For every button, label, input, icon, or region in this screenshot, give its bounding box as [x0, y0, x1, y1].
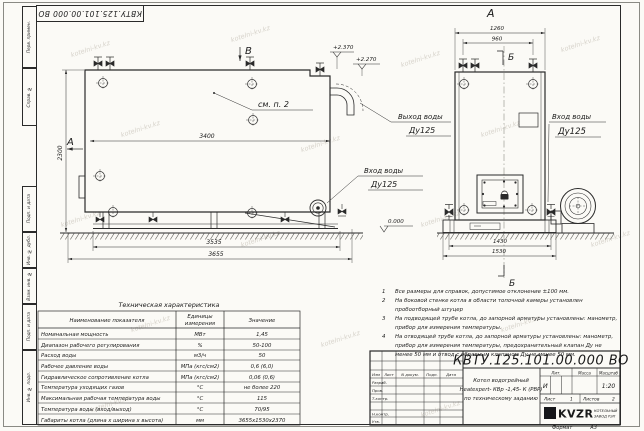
- note-text: На боковой стенке котла в области топочн…: [395, 297, 620, 315]
- inlet-dn-front: Ду125: [557, 127, 586, 137]
- note-text: На отводящей трубе котла, до запорной ар…: [395, 333, 620, 360]
- tb-sig-prov: Пров.: [372, 388, 383, 393]
- section-label-a: А: [66, 137, 74, 148]
- side-skid: [93, 212, 338, 229]
- dim-1430: 1430: [493, 239, 507, 245]
- spec-table-title: Техническая характеристика: [118, 301, 219, 309]
- front-dimensions: 1260 960 1430 1530: [443, 26, 556, 260]
- note-item: 1Все размеры для справок, допустимое отк…: [382, 288, 620, 297]
- elevation-marks: +2.370 +2.270 0.000: [330, 45, 413, 232]
- spec-row-name: Рабочее давление воды: [41, 364, 108, 370]
- elev-2370: +2.370: [333, 45, 354, 51]
- spec-row-value: 70/95: [254, 407, 270, 413]
- inlet-label-side: Вход воды: [364, 167, 404, 175]
- notes-list: 1Все размеры для справок, допустимое отк…: [382, 288, 620, 360]
- dim-3655: 3655: [208, 251, 223, 258]
- see-note-label: см. п. 2: [258, 100, 289, 109]
- note-number: 3: [382, 315, 395, 333]
- spec-row-name: Диапазон рабочего регулирования: [40, 343, 140, 349]
- dim-960: 960: [492, 37, 503, 43]
- spec-row-units: °С: [197, 396, 204, 402]
- inlet-label-front: Вход воды: [552, 113, 592, 121]
- boiler-drawing: 3400 2300 3535 3655 +2.370: [0, 0, 644, 430]
- note-text: На подводящей трубе котла, до запорной а…: [395, 315, 620, 333]
- spec-header-units-2: измерения: [185, 321, 216, 327]
- outlet-elbow: [330, 84, 363, 115]
- title-block: Изм Лист N докум. Подп. Дата Разраб. Про…: [370, 351, 629, 425]
- furnace-door: [477, 175, 523, 213]
- elev-0000: 0.000: [388, 219, 404, 225]
- tb-sheets-label: Листов: [582, 397, 600, 403]
- tb-lit-value: И: [543, 382, 548, 390]
- inspection-plugs-side: [93, 76, 260, 220]
- tb-scale-value: 1:20: [602, 383, 616, 390]
- inlet-dn-side: Ду125: [370, 180, 397, 189]
- ground: [60, 233, 614, 240]
- tb-col-data: Дата: [445, 372, 457, 377]
- tb-name-3: по техническому заданию: [464, 396, 538, 402]
- kvzr-logo-text: KVZR: [558, 408, 594, 421]
- tb-scale-header: Масштаб: [599, 371, 619, 376]
- side-labels: В А см. п. 2: [66, 46, 313, 149]
- spec-row-name: Расход воды: [41, 353, 76, 359]
- tb-name-1: Котел водогрейный: [473, 378, 529, 384]
- spec-row-units: МВт: [194, 332, 206, 338]
- tb-col-list: Лист: [383, 372, 394, 377]
- tb-col-podp: Подп.: [426, 372, 438, 377]
- kvzr-caption-2: ЗАВОД РЭП: [594, 415, 616, 419]
- front-view: А: [443, 7, 606, 289]
- spec-row-value: 50-100: [253, 343, 272, 349]
- spec-header-units-1: Единицы: [187, 314, 212, 320]
- spec-row-value: 0,06 (0,6): [249, 375, 275, 381]
- spec-row-units: МПа (кгс/см2): [181, 375, 220, 381]
- front-base: [443, 220, 556, 233]
- spec-row-units: м3/ч: [194, 353, 206, 359]
- spec-header-name: Наименование показателя: [70, 318, 146, 324]
- spec-row-name: Температура уходящих газов: [41, 385, 124, 391]
- tb-sheet-label: Лист: [543, 397, 556, 403]
- note-number: 4: [382, 333, 395, 360]
- side-view: 3400 2300 3535 3655 +2.370: [57, 45, 451, 263]
- tb-name-2: Heatexpert- КВр -1,45- К (РВР): [460, 387, 543, 393]
- dim-3400: 3400: [199, 133, 214, 140]
- side-callouts: Выход воды Ду125 Вход воды Ду125: [327, 103, 451, 203]
- spec-row-name: Габариты котла (длина х ширина х высота): [41, 418, 163, 424]
- inlet-flange: [310, 200, 326, 216]
- note-text: Все размеры для справок, допустимое откл…: [395, 288, 620, 297]
- spec-row-value: 50: [259, 353, 266, 359]
- spec-row-name: Гидравлическое сопротивление котла: [41, 375, 149, 381]
- spec-row-units: МПа (кгс/см2): [181, 364, 220, 370]
- dim-1260: 1260: [490, 26, 504, 32]
- spec-table: Техническая характеристика Наименование …: [38, 301, 300, 425]
- front-view-label: А: [486, 7, 495, 20]
- spec-header-value: Значение: [249, 318, 276, 324]
- spec-row-name: Максимальная рабочая температура воды: [41, 396, 160, 402]
- outlet-label: Выход воды: [398, 113, 443, 121]
- side-plate: [79, 176, 85, 198]
- tb-sig-tkontr: Т.контр.: [372, 396, 388, 401]
- spec-row-value: 0,6 (6,0): [251, 364, 274, 370]
- dim-3535: 3535: [206, 239, 221, 246]
- tb-lit-header: Лит.: [550, 371, 560, 376]
- outlet-dn: Ду125: [408, 126, 435, 135]
- tb-sig-utv: Утв.: [372, 419, 380, 424]
- view-arrow-v: В: [245, 46, 252, 57]
- section-b-top: Б: [508, 53, 514, 63]
- spec-row-name: Температура воды (вход/выход): [41, 407, 132, 413]
- tb-sheet-value: 1: [570, 397, 573, 403]
- kvzr-logo: KVZR КОТЕЛЬНЫЙ ЗАВОД РЭП: [544, 407, 618, 421]
- spec-row-name: Номинальная мощность: [41, 332, 109, 338]
- top-valves-side: [94, 57, 324, 76]
- note-number: 2: [382, 297, 395, 315]
- tb-sig-razrab: Разраб.: [372, 380, 387, 385]
- dim-2300: 2300: [57, 145, 64, 160]
- boiler-shell-front: [455, 72, 545, 220]
- spec-row-units: °С: [197, 407, 204, 413]
- inspection-plugs-front: [457, 77, 540, 217]
- spec-row-value: 115: [257, 396, 268, 402]
- spec-row-value: не более 220: [244, 385, 281, 391]
- tb-sig-nkontr: Н.контр.: [372, 412, 389, 417]
- tb-sheets-value: 2: [612, 397, 615, 403]
- spec-row-units: °С: [197, 385, 204, 391]
- drain-valves: [96, 204, 346, 222]
- front-pipe-valves: [445, 205, 555, 221]
- spec-row-units: %: [197, 343, 202, 349]
- tb-mass-header: Масса: [578, 371, 591, 376]
- tb-col-izm: Изм: [372, 372, 380, 377]
- dim-1530: 1530: [492, 249, 506, 255]
- spec-row-value: 1,45: [256, 332, 268, 338]
- blower-fan: [551, 189, 596, 234]
- tb-col-ndokum: N докум.: [401, 372, 419, 377]
- top-valves-front: [459, 59, 537, 72]
- flue-opening: [519, 113, 538, 127]
- elev-2270: +2.270: [356, 57, 377, 63]
- note-item: 3На подводящей трубе котла, до запорной …: [382, 315, 620, 333]
- note-item: 2На боковой стенке котла в области топоч…: [382, 297, 620, 315]
- spec-row-units: мм: [196, 418, 204, 424]
- note-number: 1: [382, 288, 395, 297]
- spec-row-value: 3655х1530х2370: [239, 418, 286, 424]
- note-item: 4На отводящей трубе котла, до запорной а…: [382, 333, 620, 360]
- kvzr-caption-1: КОТЕЛЬНЫЙ: [594, 408, 618, 413]
